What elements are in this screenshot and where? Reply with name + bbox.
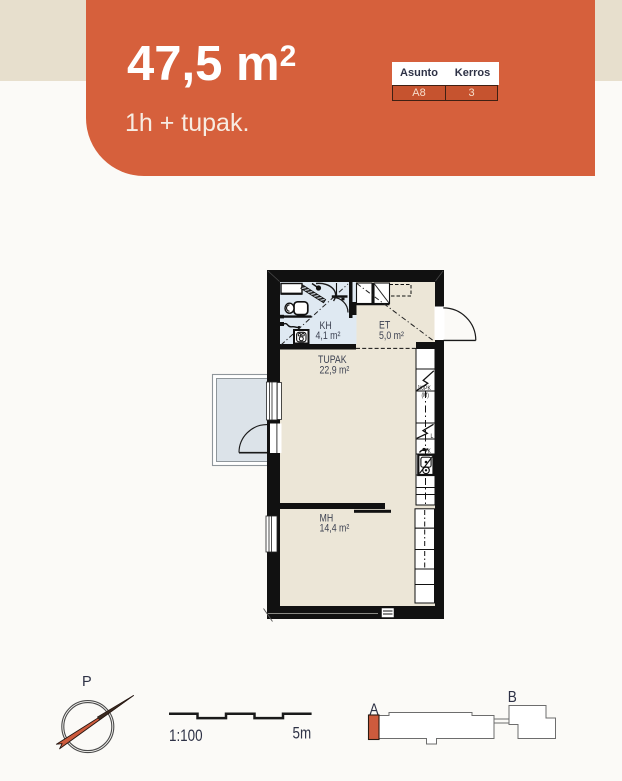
svg-text:14,4 m²: 14,4 m²: [320, 523, 350, 535]
svg-text:L: L: [431, 434, 434, 441]
svg-text:5m: 5m: [293, 724, 312, 743]
svg-text:5,0 m²: 5,0 m²: [379, 330, 405, 342]
svg-text:P: P: [82, 674, 92, 690]
svg-text:22,9 m²: 22,9 m²: [320, 365, 350, 377]
svg-text:A: A: [370, 702, 379, 719]
svg-text:(M): (M): [422, 393, 430, 400]
svg-text:JK/PK: JK/PK: [417, 386, 431, 393]
svg-text:1:100: 1:100: [169, 727, 203, 746]
svg-text:B: B: [508, 689, 517, 706]
svg-text:4,1 m²: 4,1 m²: [316, 330, 342, 342]
